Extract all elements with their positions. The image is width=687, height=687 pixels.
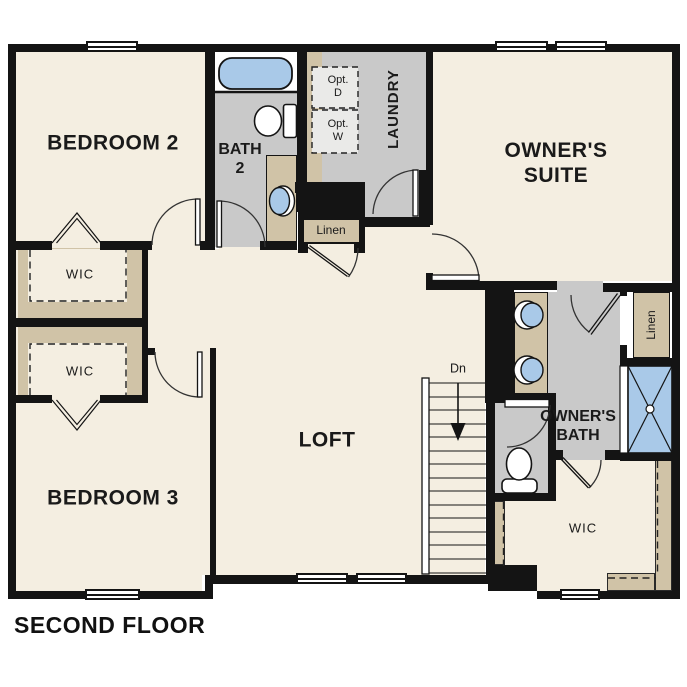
owners-suite-line2: SUITE (505, 164, 608, 189)
loft-label: LOFT (299, 429, 356, 454)
wall-wic2-bottom-a (8, 395, 52, 403)
opt-washer-line1: Opt. (328, 118, 349, 131)
owners-bath-label: OWNER'S BATH (540, 408, 616, 446)
wall-bed2-bottom-a (8, 241, 52, 250)
linen2-label: Linen (644, 310, 658, 339)
wall-wic2-bottom-b (100, 395, 148, 403)
wall-shower-bottom (620, 453, 672, 461)
wall-toilet-top-stub (549, 393, 556, 402)
window-suite-1 (495, 41, 548, 52)
window-bedroom2 (86, 41, 138, 52)
wall-linen2-stub-b (620, 345, 627, 366)
hall-patch (365, 227, 430, 249)
wall-vanity-bottom (514, 393, 550, 402)
wic1-label: WIC (66, 266, 94, 281)
wall-jog (205, 575, 213, 595)
owners-bath-line2: BATH (540, 427, 616, 446)
wall-loft-left (210, 348, 216, 576)
wall-laundry-suite2 (419, 170, 430, 227)
window-loft-1 (296, 573, 348, 584)
wall-bed2-bath2 (205, 51, 215, 249)
window-bedroom3 (85, 589, 140, 600)
wall-wic-divider (8, 318, 148, 327)
laundry-counter-strip (307, 52, 322, 183)
owners-suite-label: OWNER'S SUITE (505, 139, 608, 189)
linen1-label: Linen (316, 223, 345, 237)
wall-linen1-b (354, 244, 365, 253)
bedroom2-label: BEDROOM 2 (47, 132, 179, 157)
wall-wic-right (142, 241, 148, 403)
linen1-door-opening (306, 244, 354, 253)
tub-alcove (215, 52, 297, 93)
laundry-label: LAUNDRY (385, 69, 403, 149)
window-wic (560, 589, 600, 600)
owners-vanity (514, 292, 548, 396)
wall-toilet-bottom (488, 493, 556, 501)
wall-bath2-bottom (260, 241, 297, 250)
plan-title: SECOND FLOOR (14, 612, 205, 639)
bath2-vanity (266, 155, 297, 243)
bedroom2-door-opening (152, 241, 200, 250)
wall-linen1-a (298, 244, 308, 253)
window-suite-2 (555, 41, 607, 52)
wic2-label: WIC (66, 363, 94, 378)
optional-washer-label: Opt. W (328, 118, 349, 144)
wall-right (672, 44, 680, 599)
wall-wic3-bottom (537, 591, 676, 599)
shower-icon (620, 366, 672, 453)
wall-bed3-door-stub (148, 348, 155, 355)
owners-bath-entry-strip (557, 281, 603, 292)
opt-washer-line2: W (328, 131, 349, 144)
opt-dryer-line1: Opt. (328, 74, 349, 87)
stairs-down-label: Dn (450, 362, 466, 377)
owners-bath-line1: OWNER'S (540, 408, 616, 427)
wic2-opening (52, 395, 100, 404)
owners-suite-line1: OWNER'S (505, 139, 608, 164)
bath2-label-line2: 2 (218, 160, 261, 179)
wic-shelf-right (655, 458, 672, 591)
optional-dryer-label: Opt. D (328, 74, 349, 100)
owners-wic-label: WIC (569, 520, 597, 535)
window-loft-2 (356, 573, 407, 584)
wic-shelf-bottom (607, 573, 655, 591)
wall-bath-wic-a (548, 450, 563, 460)
wall-linen2-stub-a (620, 283, 627, 296)
opt-dryer-line2: D (328, 87, 349, 100)
floorplan-second-floor: BEDROOM 2 BATH 2 LAUNDRY Opt. D Opt. W O… (0, 0, 687, 687)
bath2-label-line1: BATH (218, 141, 261, 160)
wall-corner-block (488, 565, 537, 591)
bath-wic-opening (563, 450, 605, 460)
bath2-label: BATH 2 (218, 141, 261, 179)
bedroom3-label: BEDROOM 3 (47, 487, 179, 512)
wall-center-mass (485, 283, 514, 403)
wall-shower-linen (620, 358, 672, 366)
wall-suite-bottom2 (603, 283, 672, 292)
wall-loft-bottom (208, 575, 496, 584)
wall-laundry-bottom (295, 182, 365, 193)
wall-wic3-left (488, 501, 495, 565)
wall-bed2-bottom-c (200, 241, 215, 250)
